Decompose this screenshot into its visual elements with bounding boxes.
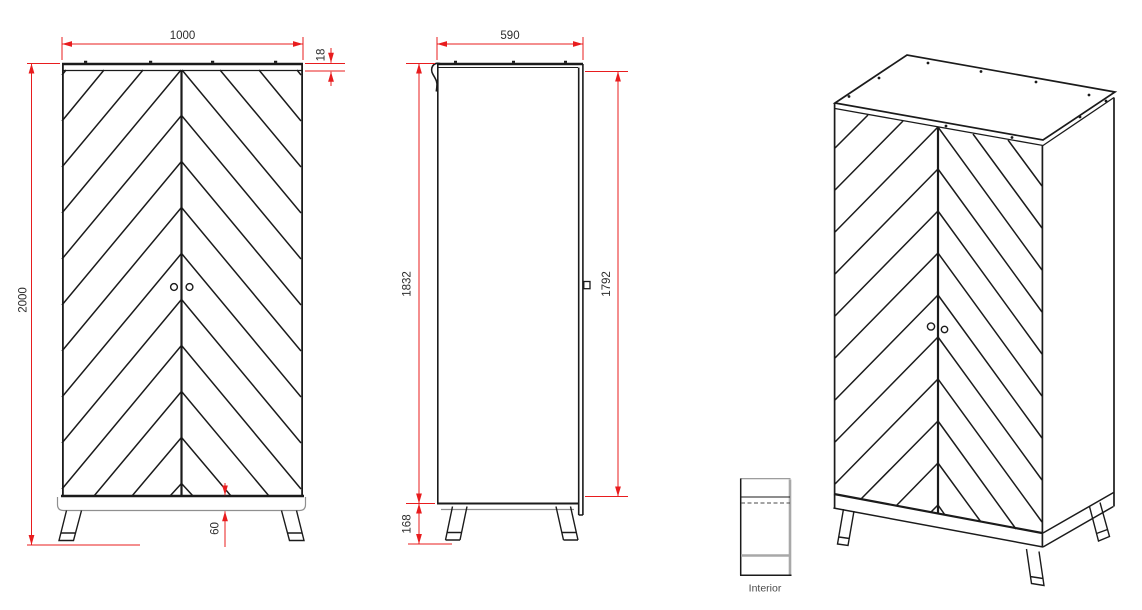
iso-carcass (833, 55, 1115, 547)
chevron-left-door (62, 70, 181, 496)
interior-label: Interior (749, 583, 782, 595)
front-view: 1000 18 2000 60 (18, 30, 346, 547)
drawing-canvas: 1000 18 2000 60 (0, 0, 1142, 610)
front-plinth (58, 497, 306, 511)
side-knob (584, 282, 590, 289)
dim-overall-height: 2000 (18, 287, 30, 313)
iso-legs (838, 503, 1110, 586)
knob-left (171, 284, 178, 291)
dim-door-height: 1792 (601, 271, 613, 297)
wardrobe-technical-drawing: 1000 18 2000 60 (0, 0, 1142, 610)
iso-knob-right (941, 326, 947, 332)
door-edge (579, 64, 583, 515)
front-legs (59, 511, 304, 541)
side-view: 590 1832 168 1792 (402, 30, 629, 544)
dim-plinth-height: 60 (210, 522, 222, 535)
dim-front-width: 1000 (170, 30, 196, 42)
isometric-view (833, 55, 1115, 586)
interior-detail: Interior (740, 479, 792, 595)
side-legs (446, 507, 579, 541)
dim-depth: 590 (500, 30, 519, 42)
iso-knob-left (927, 323, 934, 330)
dim-carcass-height: 1832 (402, 271, 414, 297)
iso-chevron-left-door (835, 115, 938, 512)
dim-leg-height: 168 (402, 514, 414, 533)
side-carcass (437, 62, 583, 515)
dim-top-thickness: 18 (316, 49, 328, 62)
knob-right (186, 284, 193, 291)
front-dimension-lines (27, 37, 345, 547)
chevron-right-door (182, 70, 301, 496)
iso-chevron-right-door (938, 127, 1042, 529)
iso-top-fittings (848, 62, 1108, 139)
side-dimension-lines (406, 37, 628, 544)
